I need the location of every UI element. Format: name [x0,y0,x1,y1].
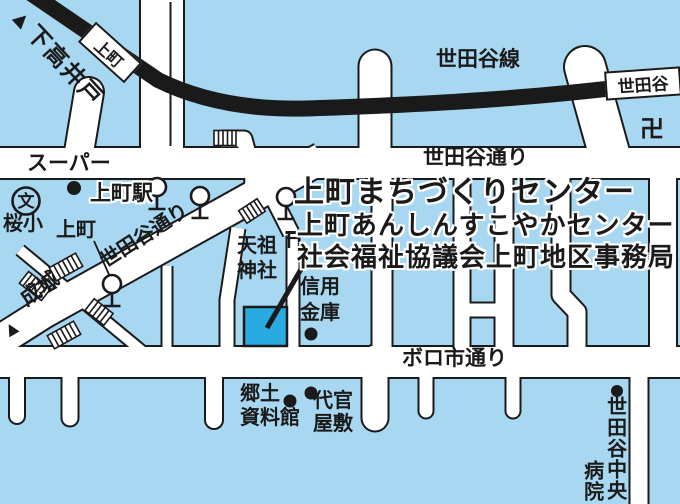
supermarket-label: スーパー [27,152,111,177]
destination-title-line3: 社会福祉協議会上町地区事務局 [297,242,675,273]
shinkin-bank-label: 信用 金庫 [300,274,340,326]
shinkin-bank-dot [305,328,318,341]
setagaya-line-label: 世田谷線 [436,48,520,73]
kamimachi-station-label: 上町駅 [90,182,153,207]
temple-manji-icon: 卍 [640,116,664,144]
map: 上町 世田谷 ▲下高井戸 世田谷線 卍 スーパー 世田谷通り 上町駅 文 桜小 … [0,0,680,504]
station-box-setagaya: 世田谷 [604,66,680,100]
hospital-label-main: 世田谷中央 [602,396,626,501]
daikan-yashiki-label: 代官 屋敷 [313,390,353,436]
school-symbol-label: 文 [17,192,35,212]
railway-crossing-mark [214,131,236,146]
kamimachi-crossing-label: 上町 [56,219,96,243]
hospital-label-sub: 病院 [579,460,603,502]
boroichi-dori-label: ボロ市通り [402,347,507,372]
station-label: 世田谷 [617,69,670,97]
kyodo-museum-label: 郷土 資料館 [240,382,300,430]
destination-title-line1: 上町まちづくりセンター [294,175,635,210]
supermarket-dot [67,181,81,195]
sakura-elementary-label: 桜小 [3,213,43,237]
setagaya-dori-label: 世田谷通り [423,146,528,171]
destination-title-line2: 上町あんしんすこやかセンター [297,210,674,241]
tenso-shrine-label: 天祖 神社 [237,234,277,284]
